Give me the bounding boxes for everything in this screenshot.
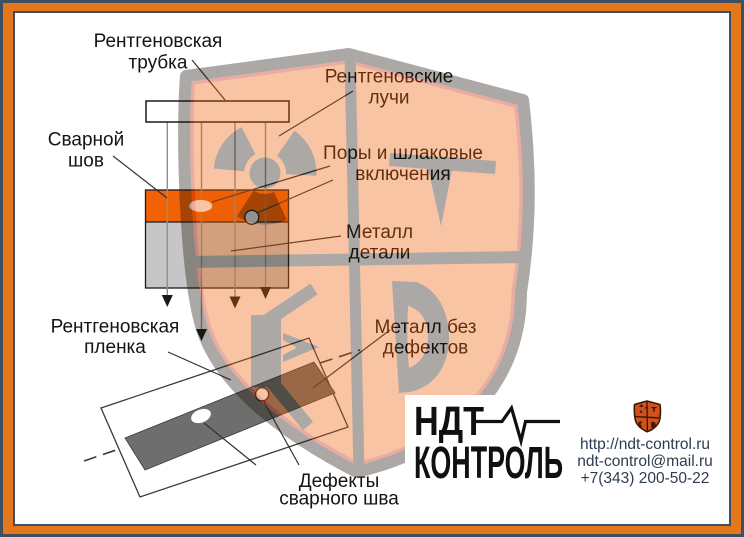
svg-text:Рентгеновская: Рентгеновская bbox=[94, 31, 223, 52]
svg-text:шов: шов bbox=[68, 151, 104, 172]
svg-text:пленка: пленка bbox=[84, 337, 146, 358]
svg-text:Рентгеновская: Рентгеновская bbox=[51, 317, 180, 338]
svg-text:трубка: трубка bbox=[129, 53, 188, 74]
svg-text:Сварной: Сварной bbox=[48, 130, 124, 151]
svg-text:сварного шва: сварного шва bbox=[279, 489, 399, 510]
